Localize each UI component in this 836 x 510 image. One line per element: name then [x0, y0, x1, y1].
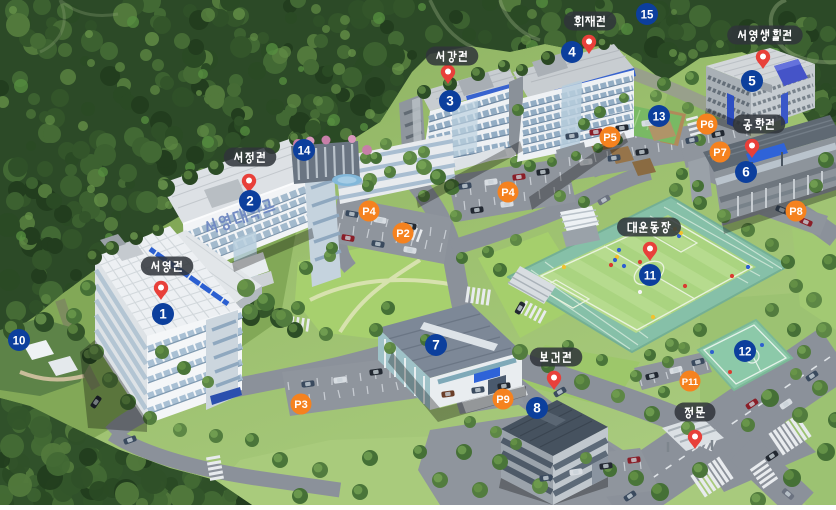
- svg-text:P6: P6: [700, 119, 713, 131]
- svg-text:7: 7: [432, 338, 440, 353]
- svg-text:12: 12: [739, 347, 752, 359]
- svg-text:14: 14: [298, 146, 311, 158]
- svg-text:P5: P5: [603, 132, 616, 144]
- svg-text:P11: P11: [682, 377, 699, 388]
- svg-text:P7: P7: [713, 147, 726, 159]
- svg-text:3: 3: [446, 94, 454, 109]
- svg-text:1: 1: [159, 307, 167, 322]
- svg-text:P3: P3: [294, 399, 307, 411]
- svg-text:P2: P2: [396, 228, 409, 240]
- svg-text:11: 11: [644, 271, 657, 283]
- svg-text:P8: P8: [789, 206, 802, 218]
- svg-text:P4: P4: [501, 187, 515, 199]
- svg-text:10: 10: [13, 336, 26, 348]
- svg-text:4: 4: [568, 45, 576, 60]
- svg-text:6: 6: [742, 165, 750, 180]
- svg-text:13: 13: [653, 112, 666, 124]
- svg-text:2: 2: [246, 194, 254, 209]
- svg-text:P9: P9: [496, 394, 509, 406]
- svg-text:8: 8: [533, 401, 541, 416]
- svg-text:15: 15: [641, 10, 654, 22]
- svg-text:5: 5: [748, 74, 756, 89]
- svg-text:P4: P4: [362, 206, 376, 218]
